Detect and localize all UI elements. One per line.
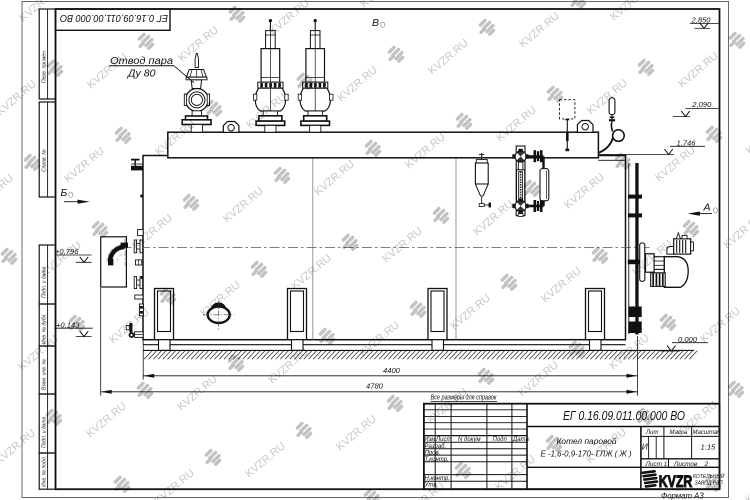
svg-text:Подп. и дата: Подп. и дата xyxy=(42,416,48,448)
svg-text:KVZR: KVZR xyxy=(659,472,693,491)
svg-text:ЕГ 0.16.09.011.00.000 ВО: ЕГ 0.16.09.011.00.000 ВО xyxy=(563,408,685,423)
svg-text:2,090: 2,090 xyxy=(691,100,712,109)
svg-text:Подп: Подп xyxy=(493,437,508,443)
svg-text:Разраб.: Разраб. xyxy=(425,444,447,450)
svg-text:И: И xyxy=(642,442,648,452)
svg-text:Пров.: Пров. xyxy=(425,450,441,456)
svg-text:А: А xyxy=(703,202,711,214)
svg-text:1:15: 1:15 xyxy=(701,443,717,452)
svg-text:4400: 4400 xyxy=(383,366,401,375)
svg-text:4780: 4780 xyxy=(366,382,384,391)
svg-text:Масштаб: Масштаб xyxy=(693,430,722,436)
svg-text:Лист 1: Лист 1 xyxy=(645,461,668,468)
svg-text:Лист: Лист xyxy=(435,437,451,443)
svg-text:Лит: Лит xyxy=(645,430,658,436)
svg-text:В: В xyxy=(372,17,379,29)
svg-text:Инв. № подл.: Инв. № подл. xyxy=(42,456,48,487)
svg-text:Ду 80: Ду 80 xyxy=(127,69,156,80)
svg-text:Взам. инв. №: Взам. инв. № xyxy=(42,358,48,390)
svg-text:Перв. примен.: Перв. примен. xyxy=(42,50,48,83)
svg-text:Листов: Листов xyxy=(673,461,698,468)
svg-text:N докум: N докум xyxy=(458,437,481,443)
svg-text:Т.контр.: Т.контр. xyxy=(425,457,449,463)
svg-text:2: 2 xyxy=(704,461,709,468)
svg-text:Формат А3: Формат А3 xyxy=(661,492,704,500)
svg-text:Дата: Дата xyxy=(512,437,529,443)
svg-text:Справ. №: Справ. № xyxy=(42,149,48,172)
svg-text:Б: Б xyxy=(61,187,68,199)
svg-text:Изм: Изм xyxy=(424,437,435,443)
svg-text:ЕГ 0.16.09.011.00.000 ВО: ЕГ 0.16.09.011.00.000 ВО xyxy=(60,12,168,23)
